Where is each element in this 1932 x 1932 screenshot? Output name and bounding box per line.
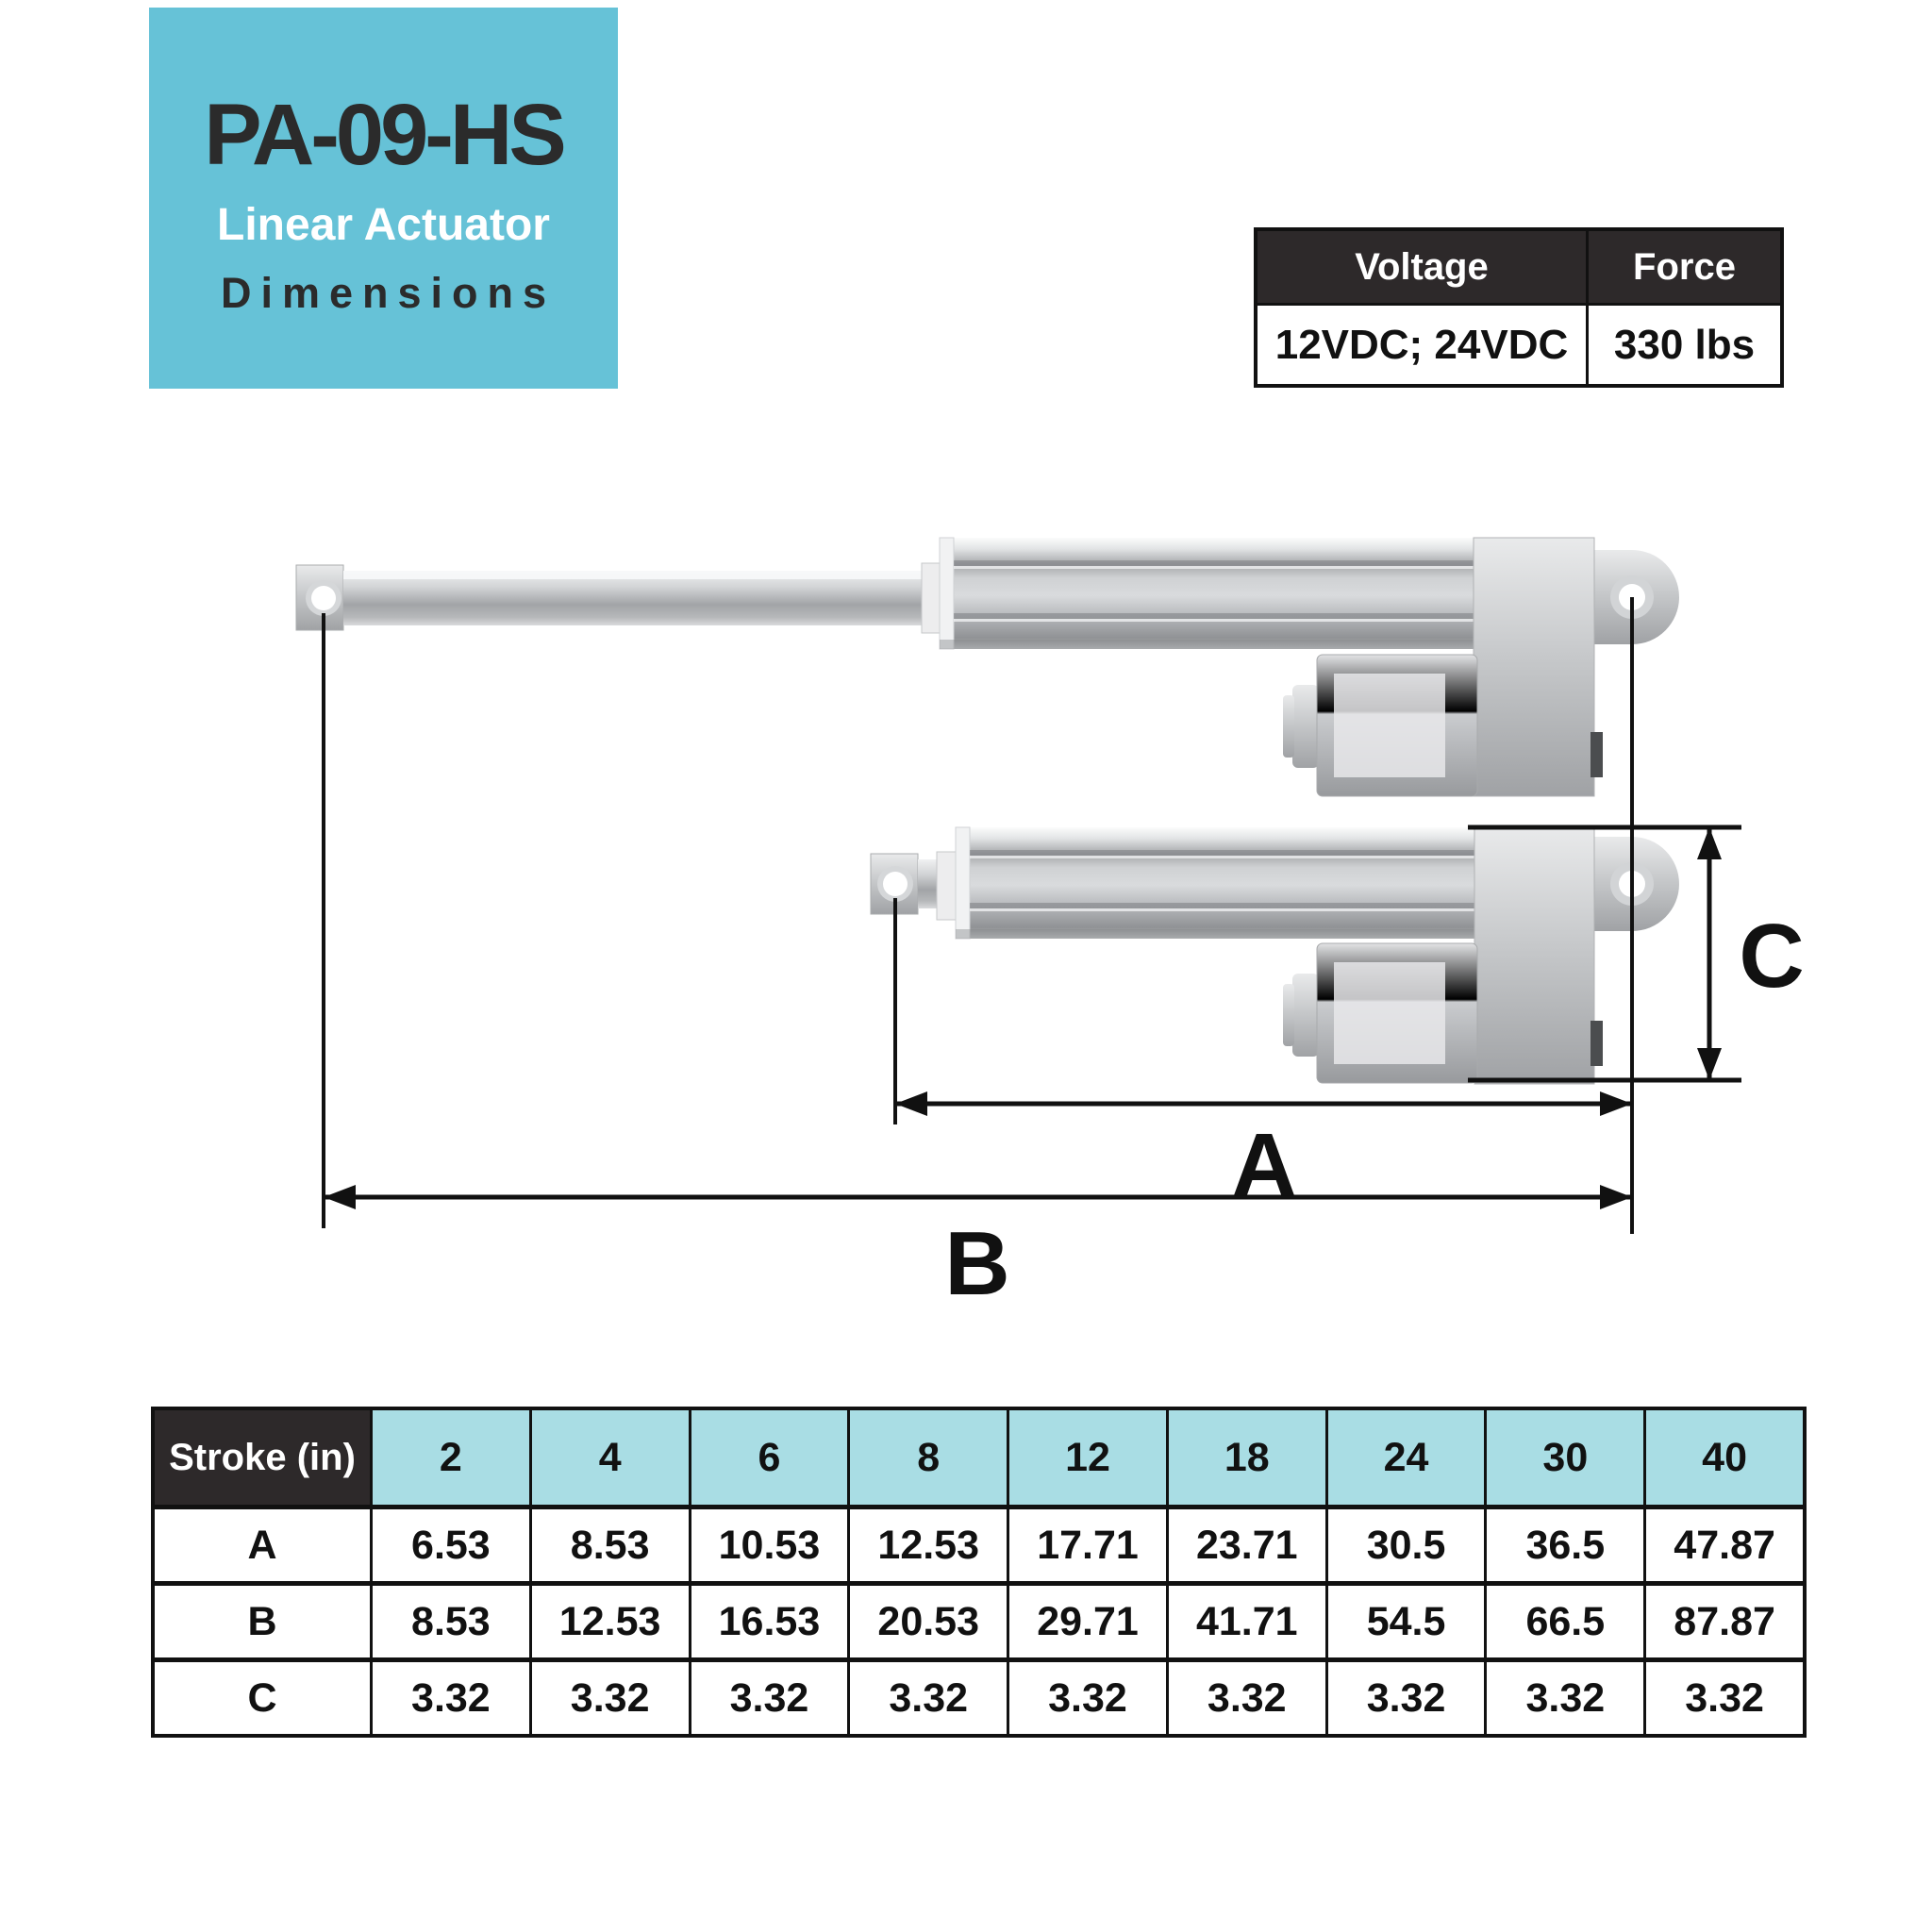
rod-eyelet-hole bbox=[311, 586, 336, 610]
rod-highlight bbox=[343, 571, 940, 579]
motor-end-cap bbox=[1292, 685, 1319, 768]
tube-groove-highlight bbox=[970, 856, 1474, 858]
table-value-b: 16.53 bbox=[691, 1586, 848, 1657]
stroke-header-label: Stroke (in) bbox=[155, 1410, 370, 1505]
table-value-c: 3.32 bbox=[1009, 1662, 1166, 1734]
motor-face bbox=[1334, 962, 1445, 1064]
table-value-b: 12.53 bbox=[532, 1586, 689, 1657]
table-value-a: 6.53 bbox=[373, 1509, 529, 1581]
table-value-a: 10.53 bbox=[691, 1509, 848, 1581]
tube-groove bbox=[954, 613, 1474, 619]
tube-shadow bbox=[956, 929, 1474, 939]
outer-tube bbox=[940, 538, 1474, 649]
table-value-c: 3.32 bbox=[1169, 1662, 1325, 1734]
table-value-a: 17.71 bbox=[1009, 1509, 1166, 1581]
wire-nub bbox=[1591, 1021, 1603, 1066]
motor-end-cap bbox=[1292, 974, 1319, 1057]
stroke-col-header: 30 bbox=[1487, 1410, 1643, 1505]
motor-end-cap-small bbox=[1283, 984, 1294, 1046]
actuator-retracted-drawing bbox=[871, 827, 1679, 1084]
dim-label-c: C bbox=[1739, 906, 1804, 1007]
stroke-col-header: 40 bbox=[1646, 1410, 1803, 1505]
stroke-col-header: 4 bbox=[532, 1410, 689, 1505]
stroke-col-header: 18 bbox=[1169, 1410, 1325, 1505]
table-value-a: 12.53 bbox=[850, 1509, 1007, 1581]
table-value-c: 3.32 bbox=[1646, 1662, 1803, 1734]
table-value-b: 41.71 bbox=[1169, 1586, 1325, 1657]
tube-groove bbox=[970, 903, 1474, 908]
table-value-a: 8.53 bbox=[532, 1509, 689, 1581]
table-value-a: 23.71 bbox=[1169, 1509, 1325, 1581]
tube-groove-highlight bbox=[954, 619, 1474, 622]
stroke-col-header: 2 bbox=[373, 1410, 529, 1505]
table-value-c: 3.32 bbox=[532, 1662, 689, 1734]
motor-face bbox=[1334, 674, 1445, 777]
wire-nub bbox=[1591, 732, 1603, 777]
rod-collar bbox=[937, 852, 956, 920]
tube-groove-highlight bbox=[970, 908, 1474, 911]
table-value-b: 29.71 bbox=[1009, 1586, 1166, 1657]
motor-end-cap-small bbox=[1283, 695, 1294, 758]
stroke-col-header: 6 bbox=[691, 1410, 848, 1505]
actuator-extended-drawing bbox=[296, 538, 1679, 796]
table-value-a: 30.5 bbox=[1328, 1509, 1485, 1581]
dim-label-b: B bbox=[944, 1213, 1009, 1314]
table-value-c: 3.32 bbox=[691, 1662, 848, 1734]
table-value-c: 3.32 bbox=[850, 1662, 1007, 1734]
rod-eyelet-hole bbox=[883, 872, 908, 896]
tube-end-cap bbox=[940, 538, 954, 649]
stroke-col-header: 8 bbox=[850, 1410, 1007, 1505]
gearbox-end-block bbox=[1474, 827, 1594, 1084]
dim-label-a: A bbox=[1231, 1115, 1296, 1216]
table-value-b: 20.53 bbox=[850, 1586, 1007, 1657]
table-value-a: 47.87 bbox=[1646, 1509, 1803, 1581]
spec-sheet-page: PA-09-HS Linear Actuator Dimensions Volt… bbox=[0, 0, 1932, 1932]
tube-groove bbox=[954, 560, 1474, 566]
stroke-col-header: 24 bbox=[1328, 1410, 1485, 1505]
row-label-a: A bbox=[155, 1509, 370, 1581]
tube-groove-highlight bbox=[954, 566, 1474, 569]
tube-groove bbox=[970, 850, 1474, 856]
tube-shadow bbox=[940, 640, 1474, 649]
table-value-a: 36.5 bbox=[1487, 1509, 1643, 1581]
table-value-c: 3.32 bbox=[373, 1662, 529, 1734]
table-value-c: 3.32 bbox=[1328, 1662, 1485, 1734]
gearbox-end-block bbox=[1474, 538, 1594, 796]
tube-end-cap bbox=[956, 827, 970, 939]
table-value-c: 3.32 bbox=[1487, 1662, 1643, 1734]
outer-tube bbox=[956, 827, 1474, 939]
table-value-b: 8.53 bbox=[373, 1586, 529, 1657]
table-value-b: 66.5 bbox=[1487, 1586, 1643, 1657]
row-label-b: B bbox=[155, 1586, 370, 1657]
stroke-col-header: 12 bbox=[1009, 1410, 1166, 1505]
table-value-b: 87.87 bbox=[1646, 1586, 1803, 1657]
row-label-c: C bbox=[155, 1662, 370, 1734]
stroke-dimensions-table: Stroke (in) 2 4 6 8 12 18 24 30 40 A 6.5… bbox=[151, 1407, 1807, 1738]
rod-collar bbox=[922, 563, 940, 633]
table-value-b: 54.5 bbox=[1328, 1586, 1485, 1657]
